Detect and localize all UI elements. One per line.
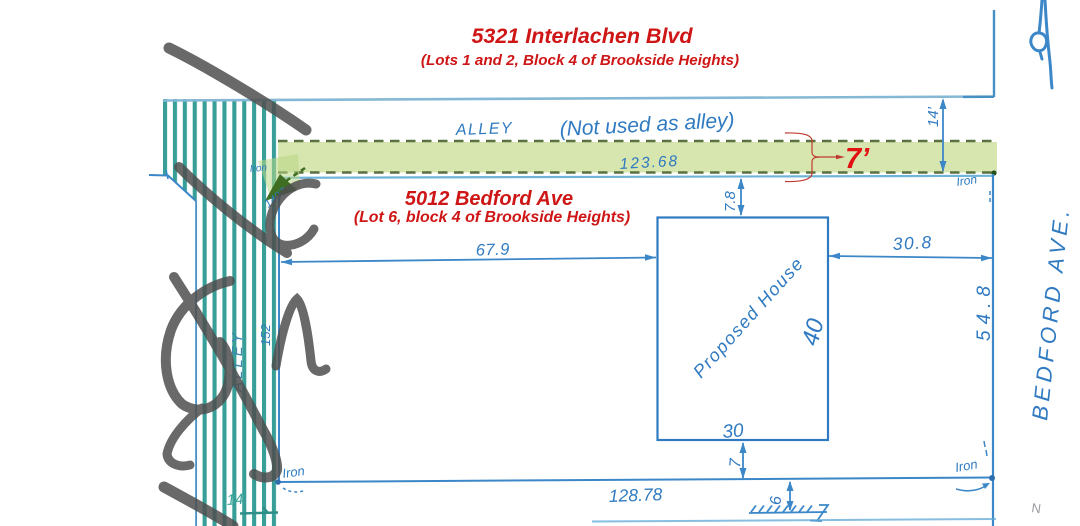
svg-text:(Lot 6, block 4 of Brookside H: (Lot 6, block 4 of Brookside Heights): [354, 209, 630, 226]
svg-text:6: 6: [768, 496, 785, 505]
svg-text:30.8: 30.8: [892, 232, 933, 254]
svg-text:5321 Interlachen Blvd: 5321 Interlachen Blvd: [471, 24, 693, 48]
svg-text:5012 Bedford Ave: 5012 Bedford Ave: [405, 188, 573, 210]
svg-text:14: 14: [226, 491, 244, 509]
svg-text:ALLEY: ALLEY: [455, 120, 514, 139]
svg-text:7’: 7’: [845, 143, 870, 175]
svg-text:Iron: Iron: [955, 172, 978, 189]
svg-text:Iron: Iron: [281, 463, 305, 481]
svg-text:152: 152: [258, 324, 273, 346]
svg-text:14’: 14’: [925, 106, 942, 127]
svg-text:123.68: 123.68: [619, 153, 679, 173]
svg-text:Iron: Iron: [249, 162, 268, 174]
svg-text:7.8: 7.8: [722, 190, 739, 212]
svg-text:67.9: 67.9: [475, 240, 510, 259]
svg-text:30: 30: [722, 420, 745, 443]
svg-text:54.8: 54.8: [974, 280, 995, 341]
svg-text:(Lots 1 and 2, Block 4 of Broo: (Lots 1 and 2, Block 4 of Brookside Heig…: [421, 52, 739, 69]
svg-text:128.78: 128.78: [608, 484, 662, 506]
